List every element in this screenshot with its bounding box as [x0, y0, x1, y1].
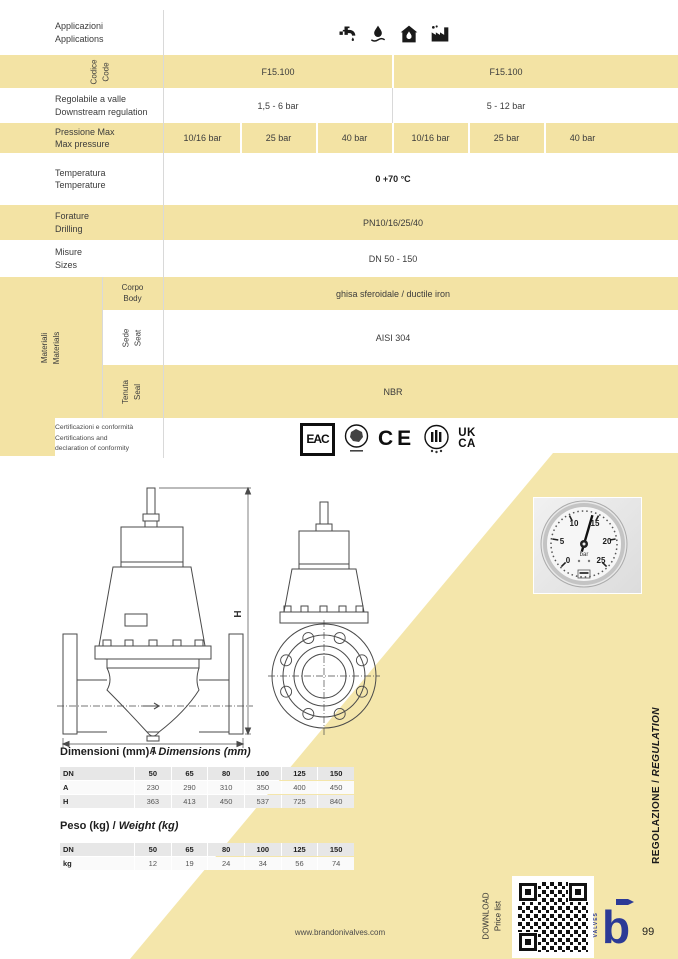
eac-logo: EAC: [300, 423, 335, 456]
pressure-value: 40 bar: [545, 123, 620, 153]
weight-table: DN 50 65 80 100 125 150 kg 12 19 24 34 5…: [60, 842, 354, 871]
column-divider: [392, 88, 393, 123]
material-seal-label: Tenuta Seal: [102, 365, 163, 418]
temperature-value: 0 +70 °C: [165, 153, 621, 205]
datasheet-page: Applicazioni Applications Codice Code F1…: [0, 0, 678, 959]
gauge-tick: 0: [566, 556, 571, 565]
factory-icon: [430, 24, 450, 44]
material-body-label: Corpo Body: [102, 277, 163, 310]
regulation-value-2: 5 - 12 bar: [393, 88, 619, 123]
regulation-value-1: 1,5 - 6 bar: [165, 88, 391, 123]
gauge-tick: 5: [560, 537, 565, 546]
pressure-label: Pressione Max Max pressure: [55, 123, 115, 153]
column-gap: [544, 123, 546, 153]
weight-table-title: Peso (kg) / Weight (kg): [60, 820, 178, 832]
valve-front-view-drawing: [268, 500, 380, 738]
pressure-gauge-photo: 0 5 10 15 20 25 bar: [533, 497, 642, 594]
column-gap: [392, 55, 394, 88]
material-seat-label: Sede Seat: [102, 310, 163, 365]
download-price-list-label: DOWNLOAD Price list: [480, 876, 506, 956]
pressure-value: 40 bar: [317, 123, 392, 153]
dim-height-label: H: [233, 610, 244, 617]
valve-side-view-drawing: H A: [55, 484, 255, 754]
material-seat-value: AISI 304: [165, 310, 621, 365]
temperature-label: Temperatura Temperature: [55, 153, 106, 205]
page-number: 99: [642, 926, 654, 938]
drilling-value: PN10/16/25/40: [165, 205, 621, 240]
water-drop-icon: [368, 24, 388, 44]
gauge-unit-label: bar: [580, 552, 589, 558]
ukca-logo: UK CA: [458, 428, 476, 450]
acs-circle-logo: [423, 423, 450, 456]
applications-label: Applicazioni Applications: [55, 10, 104, 55]
certification-logos: EAC CE UK CA: [300, 418, 476, 460]
section-sidebar-label: REGOLAZIONE / REGULATION: [644, 690, 668, 880]
gauge-tick: 25: [597, 556, 606, 565]
pressure-value: 25 bar: [469, 123, 544, 153]
dimensions-table-title: Dimensioni (mm) / Dimensions (mm): [60, 746, 251, 758]
code-value-1: F15.100: [165, 55, 391, 88]
cert-circle-logo: [343, 423, 370, 456]
materials-corner-fill: [0, 418, 55, 456]
certifications-label: Certificazioni e conformità Certificatio…: [55, 420, 133, 458]
website-link[interactable]: www.brandonivalves.com: [245, 928, 435, 937]
dimensions-table: DN 50 65 80 100 125 150 A 230 290 310 35…: [60, 766, 354, 809]
qr-code[interactable]: [512, 876, 594, 958]
application-icons: [337, 24, 450, 44]
table-header-row: DN 50 65 80 100 125 150: [60, 843, 354, 856]
drilling-label: Forature Drilling: [55, 205, 89, 240]
table-divider: [163, 10, 164, 458]
table-row: kg 12 19 24 34 56 74: [60, 857, 354, 870]
svg-text:b: b: [602, 901, 630, 953]
column-gap: [240, 123, 242, 153]
column-gap: [392, 123, 394, 153]
table-header-row: DN 50 65 80 100 125 150: [60, 767, 354, 780]
brandoni-logo: VALVES b: [592, 897, 634, 953]
material-body-value: ghisa sferoidale / ductile iron: [165, 277, 621, 310]
table-row: H 363 413 450 537 725 840: [60, 795, 354, 808]
column-gap: [316, 123, 318, 153]
code-label: Codice Code: [55, 55, 145, 88]
gauge-tick: 10: [570, 519, 579, 528]
brandoni-b-mark: b: [600, 897, 634, 953]
table-row: A 230 290 310 350 400 450: [60, 781, 354, 794]
materials-label: Materiali Materials: [0, 277, 102, 418]
materials-divider: [102, 277, 103, 418]
pressure-value: 10/16 bar: [165, 123, 240, 153]
column-gap: [468, 123, 470, 153]
pressure-gauge: 0 5 10 15 20 25 bar: [534, 498, 641, 593]
ce-logo: CE: [378, 427, 415, 451]
material-seal-value: NBR: [165, 365, 621, 418]
code-value-2: F15.100: [393, 55, 619, 88]
house-water-icon: [399, 24, 419, 44]
sizes-label: Misure Sizes: [55, 240, 82, 277]
regulation-label: Regolabile a valle Downstream regulation: [55, 88, 148, 123]
faucet-icon: [337, 24, 357, 44]
sizes-value: DN 50 - 150: [165, 240, 621, 277]
pressure-value: 10/16 bar: [393, 123, 468, 153]
pressure-value: 25 bar: [241, 123, 316, 153]
gauge-tick: 20: [603, 537, 612, 546]
